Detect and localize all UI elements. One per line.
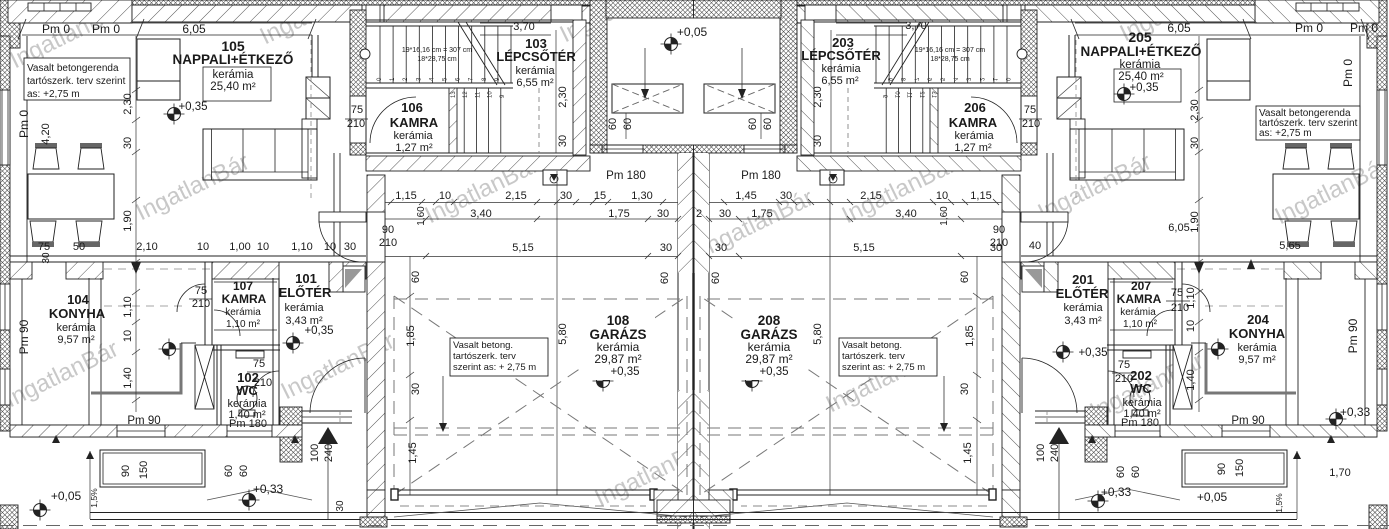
- svg-text:+0,35: +0,35: [1078, 347, 1107, 359]
- svg-text:kerámia: kerámia: [1063, 302, 1103, 314]
- svg-text:29,87 m²: 29,87 m²: [594, 352, 641, 366]
- svg-text:60: 60: [762, 118, 774, 130]
- svg-text:+0,35: +0,35: [304, 325, 333, 337]
- svg-text:5,80: 5,80: [557, 323, 569, 344]
- svg-text:210: 210: [347, 118, 365, 130]
- svg-text:75: 75: [253, 358, 265, 370]
- svg-text:2,30: 2,30: [812, 86, 824, 107]
- svg-text:13: 13: [451, 91, 457, 98]
- svg-text:NAPPALI+ÉTKEZŐ: NAPPALI+ÉTKEZŐ: [173, 52, 294, 67]
- svg-text:Pm 180: Pm 180: [1121, 417, 1159, 429]
- svg-text:tartószerk. terv: tartószerk. terv: [842, 351, 905, 362]
- svg-text:6,05: 6,05: [182, 22, 206, 36]
- svg-text:60: 60: [238, 465, 250, 477]
- svg-text:1,45: 1,45: [962, 442, 974, 463]
- svg-text:Pm 0: Pm 0: [42, 22, 70, 36]
- svg-text:Pm 90: Pm 90: [17, 319, 31, 354]
- svg-text:19*16,16 cm = 307 cm: 19*16,16 cm = 307 cm: [915, 47, 985, 54]
- svg-text:3,43 m²: 3,43 m²: [1064, 315, 1102, 327]
- svg-text:1,30: 1,30: [631, 190, 652, 202]
- svg-text:Pm 180: Pm 180: [606, 170, 646, 182]
- svg-text:1,15: 1,15: [395, 190, 416, 202]
- svg-text:tartószerk. terv: tartószerk. terv: [453, 351, 516, 362]
- svg-text:WC: WC: [1130, 381, 1152, 396]
- svg-text:2,15: 2,15: [860, 190, 881, 202]
- svg-text:204: 204: [1247, 312, 1269, 327]
- svg-text:60: 60: [1130, 466, 1142, 478]
- svg-text:30: 30: [122, 137, 134, 149]
- svg-text:Vasalt betongerenda: Vasalt betongerenda: [27, 63, 119, 74]
- svg-text:1,75: 1,75: [608, 208, 629, 220]
- svg-text:29,87 m²: 29,87 m²: [745, 352, 792, 366]
- svg-text:1,15: 1,15: [970, 190, 991, 202]
- svg-text:60: 60: [959, 271, 971, 283]
- svg-text:6,05: 6,05: [1167, 21, 1191, 35]
- svg-text:1,90: 1,90: [122, 210, 134, 231]
- svg-text:4,20: 4,20: [40, 123, 52, 144]
- svg-text:90: 90: [120, 465, 132, 477]
- svg-text:30: 30: [41, 252, 52, 264]
- svg-text:12: 12: [463, 91, 469, 98]
- svg-text:19*16,16 cm = 307 cm: 19*16,16 cm = 307 cm: [402, 47, 472, 54]
- svg-text:KAMRA: KAMRA: [949, 115, 998, 130]
- svg-text:2,10: 2,10: [136, 241, 157, 253]
- svg-text:1,60: 1,60: [416, 206, 427, 226]
- svg-text:6,55 m²: 6,55 m²: [821, 75, 859, 87]
- svg-text:30: 30: [557, 135, 569, 147]
- svg-text:Vasalt betong.: Vasalt betong.: [842, 340, 902, 351]
- svg-text:30: 30: [990, 242, 1002, 254]
- svg-text:2,30: 2,30: [122, 93, 134, 114]
- svg-text:150: 150: [138, 461, 150, 479]
- svg-text:kerámia: kerámia: [954, 130, 994, 142]
- svg-text:30: 30: [410, 383, 422, 395]
- svg-text:LÉPCSŐTÉR: LÉPCSŐTÉR: [496, 49, 576, 64]
- svg-text:210: 210: [1115, 373, 1133, 385]
- svg-text:10: 10: [122, 330, 134, 342]
- svg-text:Pm 90: Pm 90: [1346, 318, 1360, 353]
- svg-text:15: 15: [594, 190, 606, 202]
- svg-text:30: 30: [657, 208, 669, 220]
- svg-text:30: 30: [719, 208, 731, 220]
- svg-text:+0,35: +0,35: [759, 366, 788, 378]
- svg-text:Pm 0: Pm 0: [1341, 59, 1355, 87]
- svg-text:kerámia: kerámia: [225, 307, 261, 318]
- svg-text:+0,33: +0,33: [1101, 485, 1132, 499]
- svg-text:30: 30: [560, 190, 572, 202]
- svg-text:30: 30: [1189, 137, 1201, 149]
- svg-text:Pm 90: Pm 90: [1231, 415, 1264, 427]
- svg-text:60: 60: [607, 118, 619, 130]
- svg-text:150: 150: [1234, 459, 1246, 477]
- svg-text:10: 10: [197, 241, 209, 253]
- svg-text:90: 90: [382, 224, 394, 236]
- svg-text:3,40: 3,40: [470, 208, 491, 220]
- svg-text:10: 10: [324, 241, 336, 253]
- svg-text:5,15: 5,15: [853, 242, 874, 254]
- svg-text:30: 30: [660, 242, 672, 254]
- svg-text:kerámia: kerámia: [515, 65, 555, 77]
- svg-text:210: 210: [1022, 118, 1040, 130]
- svg-text:2,30: 2,30: [1189, 99, 1201, 120]
- svg-text:1,85: 1,85: [964, 325, 976, 346]
- svg-text:50: 50: [73, 241, 85, 253]
- svg-text:1,10: 1,10: [122, 296, 134, 317]
- svg-text:108: 108: [607, 313, 630, 328]
- svg-text:30: 30: [344, 241, 356, 253]
- svg-text:3,40: 3,40: [895, 208, 916, 220]
- svg-text:205: 205: [1128, 29, 1152, 45]
- svg-text:208: 208: [758, 313, 781, 328]
- svg-text:104: 104: [67, 292, 89, 307]
- svg-text:+0,35: +0,35: [1129, 82, 1158, 94]
- svg-text:ELŐTÉR: ELŐTÉR: [1056, 286, 1109, 301]
- svg-text:10: 10: [439, 190, 451, 202]
- svg-text:Pm 0: Pm 0: [1295, 21, 1323, 35]
- svg-text:Pm 180: Pm 180: [741, 170, 781, 182]
- svg-text:1,10: 1,10: [291, 241, 312, 253]
- svg-text:kerámia: kerámia: [1120, 307, 1156, 318]
- svg-text:1,5%: 1,5%: [1274, 493, 1284, 513]
- svg-text:210: 210: [379, 237, 397, 249]
- svg-text:9,57 m²: 9,57 m²: [57, 334, 95, 346]
- svg-text:60: 60: [747, 118, 759, 130]
- svg-text:206: 206: [964, 100, 986, 115]
- svg-text:106: 106: [401, 100, 423, 115]
- svg-text:210: 210: [192, 298, 210, 310]
- svg-text:1,00: 1,00: [229, 241, 250, 253]
- svg-text:1,40: 1,40: [122, 367, 134, 388]
- svg-text:75: 75: [1118, 359, 1130, 371]
- svg-text:2,15: 2,15: [505, 190, 526, 202]
- svg-text:30: 30: [780, 190, 792, 202]
- svg-text:6,55 m²: 6,55 m²: [516, 77, 554, 89]
- svg-text:1,45: 1,45: [735, 190, 756, 202]
- svg-text:Vasalt betong.: Vasalt betong.: [453, 340, 513, 351]
- svg-text:240: 240: [1049, 444, 1061, 462]
- svg-text:1,10 m²: 1,10 m²: [1123, 319, 1158, 330]
- svg-text:60: 60: [622, 118, 634, 130]
- svg-text:ELŐTÉR: ELŐTÉR: [279, 285, 332, 300]
- svg-text:kerámia: kerámia: [284, 302, 324, 314]
- svg-text:1,27 m²: 1,27 m²: [395, 142, 433, 154]
- svg-text:+0,35: +0,35: [178, 101, 207, 113]
- svg-text:30: 30: [959, 383, 971, 395]
- svg-text:5,65: 5,65: [1279, 240, 1300, 252]
- svg-text:KONYHA: KONYHA: [49, 306, 106, 321]
- svg-text:kerámia: kerámia: [393, 130, 433, 142]
- svg-text:30: 30: [812, 135, 824, 147]
- svg-text:90: 90: [1216, 463, 1228, 475]
- svg-text:210: 210: [254, 377, 272, 389]
- svg-text:szerint as: + 2,75 m: szerint as: + 2,75 m: [842, 362, 925, 373]
- svg-text:as: +2,75 m: as: +2,75 m: [27, 89, 80, 100]
- svg-text:as: +2,75 m: as: +2,75 m: [1259, 128, 1312, 139]
- svg-text:6,05: 6,05: [1168, 222, 1189, 234]
- svg-text:18*28,75 cm: 18*28,75 cm: [417, 56, 456, 63]
- svg-text:KAMRA: KAMRA: [1117, 292, 1162, 306]
- svg-text:Pm 0: Pm 0: [17, 110, 31, 138]
- svg-text:1,90: 1,90: [1189, 211, 1201, 232]
- svg-text:+0,33: +0,33: [253, 482, 284, 496]
- svg-text:75: 75: [1171, 287, 1183, 299]
- svg-text:30: 30: [335, 500, 346, 512]
- svg-text:kerámia: kerámia: [213, 69, 255, 81]
- svg-text:10: 10: [488, 91, 494, 98]
- svg-text:LÉPCSŐTÉR: LÉPCSŐTÉR: [801, 48, 881, 63]
- svg-text:kerámia: kerámia: [56, 322, 96, 334]
- svg-text:Pm 90: Pm 90: [127, 415, 160, 427]
- svg-text:107: 107: [233, 279, 253, 293]
- svg-text:60: 60: [710, 272, 722, 284]
- svg-text:+0,05: +0,05: [677, 25, 708, 39]
- svg-text:100: 100: [309, 444, 321, 462]
- svg-text:240: 240: [323, 444, 335, 462]
- svg-text:60: 60: [659, 272, 671, 284]
- svg-text:207: 207: [1131, 279, 1151, 293]
- svg-text:+0,33: +0,33: [1340, 405, 1371, 419]
- svg-text:3,70: 3,70: [513, 21, 534, 33]
- svg-text:100: 100: [1035, 444, 1047, 462]
- svg-text:Pm 0: Pm 0: [92, 22, 120, 36]
- svg-text:11: 11: [475, 91, 481, 98]
- svg-text:10: 10: [257, 241, 269, 253]
- svg-text:+0,05: +0,05: [1197, 490, 1228, 504]
- svg-text:kerámia: kerámia: [821, 63, 861, 75]
- svg-text:18*28,75 cm: 18*28,75 cm: [930, 56, 969, 63]
- svg-text:KAMRA: KAMRA: [222, 292, 267, 306]
- svg-text:10: 10: [936, 190, 948, 202]
- svg-text:2,30: 2,30: [557, 86, 569, 107]
- svg-text:+0,35: +0,35: [610, 366, 639, 378]
- svg-text:1,45: 1,45: [407, 442, 419, 463]
- svg-text:1,40: 1,40: [1185, 369, 1197, 390]
- svg-text:9,57 m²: 9,57 m²: [1238, 354, 1276, 366]
- svg-text:25,40 m²: 25,40 m²: [210, 81, 256, 93]
- svg-text:2: 2: [696, 208, 702, 220]
- svg-text:101: 101: [295, 271, 317, 286]
- svg-text:1,27 m²: 1,27 m²: [954, 142, 992, 154]
- svg-text:30: 30: [715, 242, 727, 254]
- svg-text:5,80: 5,80: [812, 323, 824, 344]
- svg-text:kerámia: kerámia: [1237, 342, 1277, 354]
- svg-text:3,70: 3,70: [905, 20, 926, 32]
- svg-text:1,10: 1,10: [1185, 287, 1197, 308]
- svg-text:NAPPALI+ÉTKEZŐ: NAPPALI+ÉTKEZŐ: [1081, 44, 1202, 59]
- svg-text:201: 201: [1072, 272, 1094, 287]
- svg-text:60: 60: [1115, 466, 1127, 478]
- svg-text:Pm 180: Pm 180: [229, 418, 267, 430]
- svg-text:60: 60: [223, 465, 235, 477]
- svg-text:Pm 0: Pm 0: [1350, 21, 1378, 35]
- svg-text:KAMRA: KAMRA: [390, 115, 439, 130]
- svg-text:+0,05: +0,05: [51, 489, 82, 503]
- svg-text:75: 75: [1024, 104, 1036, 116]
- svg-text:szerint as: + 2,75 m: szerint as: + 2,75 m: [453, 362, 536, 373]
- svg-text:40: 40: [1029, 240, 1041, 252]
- svg-text:75: 75: [195, 285, 207, 297]
- svg-text:90: 90: [993, 224, 1005, 236]
- svg-text:1,10 m²: 1,10 m²: [226, 319, 261, 330]
- svg-text:5,15: 5,15: [512, 242, 533, 254]
- svg-text:1,5%: 1,5%: [89, 488, 99, 508]
- svg-text:75: 75: [38, 241, 50, 253]
- svg-text:60: 60: [410, 271, 422, 283]
- svg-text:10: 10: [1185, 320, 1197, 332]
- svg-text:75: 75: [351, 104, 363, 116]
- svg-text:1,85: 1,85: [405, 325, 417, 346]
- svg-text:KONYHA: KONYHA: [1229, 326, 1286, 341]
- svg-text:1,75: 1,75: [751, 208, 772, 220]
- svg-text:tartószerk. terv szerint: tartószerk. terv szerint: [27, 76, 126, 87]
- svg-text:1,60: 1,60: [939, 206, 950, 226]
- svg-text:1,70: 1,70: [1329, 467, 1350, 479]
